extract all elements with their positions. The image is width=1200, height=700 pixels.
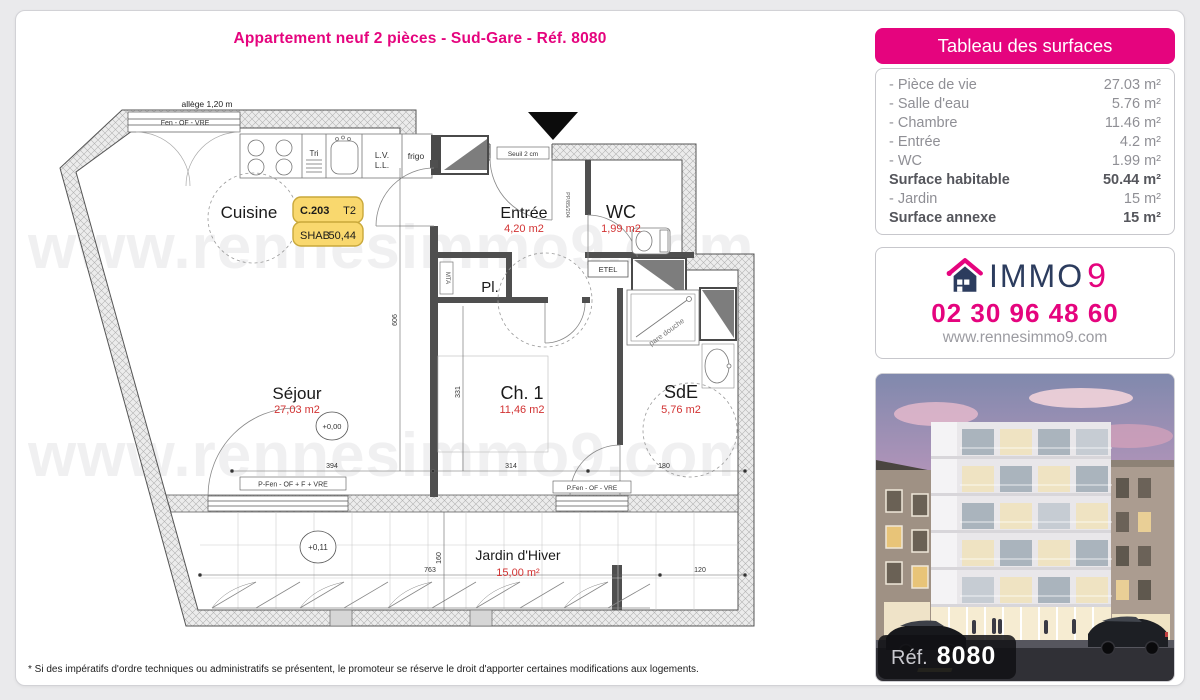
badge-type: T2: [343, 205, 356, 217]
room-sde: SdE: [664, 382, 698, 402]
svg-text:180: 180: [658, 463, 670, 470]
agency-card: IMMO 9 02 30 96 48 60 www.rennesimmo9.co…: [875, 247, 1175, 359]
svg-text:160: 160: [436, 552, 443, 564]
svg-text:120: 120: [694, 567, 706, 574]
chambre-window-label: P.Fen - OF - VRE: [567, 485, 618, 492]
room-placard: Pl.: [481, 279, 499, 296]
table-row: - Jardin15 m²: [889, 190, 1161, 209]
svg-text:331: 331: [455, 386, 462, 398]
svg-text:314: 314: [505, 463, 517, 470]
duct-kitchen: [432, 136, 488, 174]
badge-shab-label: SHAB: [300, 230, 330, 242]
room-cuisine: Cuisine: [221, 203, 278, 222]
sejour-window-label: P-Fen - OF + F + VRE: [258, 482, 328, 489]
area-jardin: 15,00 m²: [496, 567, 540, 579]
exterior-walls: [60, 110, 754, 626]
interior-walls: [430, 160, 694, 610]
sejour-window: [208, 496, 348, 511]
agency-logo: IMMO 9: [876, 254, 1174, 298]
page-title: Appartement neuf 2 pièces - Sud-Gare - R…: [60, 30, 780, 48]
frigo-label: frigo: [408, 151, 425, 161]
room-entree: Entrée: [500, 205, 547, 222]
surfaces-table-header: Tableau des surfaces: [875, 28, 1175, 64]
phone-number[interactable]: 02 30 96 48 60: [876, 298, 1174, 328]
area-chambre: 11,46 m2: [499, 404, 544, 416]
dimension-labels: 394 314 180 763 120 606 331 160: [326, 314, 706, 574]
level-jardin: +0,11: [308, 543, 328, 552]
jardin-louvers: [212, 582, 650, 608]
tri-label: Tri: [309, 149, 318, 158]
sidebar: Tableau des surfaces - Pièce de vie27.03…: [875, 28, 1175, 682]
lv-label: L.V.: [375, 150, 389, 160]
ll-label: L.L.: [375, 160, 389, 170]
entrance-arrow-icon: [528, 112, 578, 140]
brand-nine: 9: [1087, 257, 1106, 296]
window-label: Fen - OF - VRE: [161, 120, 210, 127]
area-entree: 4,20 m2: [504, 223, 544, 235]
svg-text:394: 394: [326, 463, 338, 470]
house-icon: [944, 256, 986, 296]
ref-label: Réf.: [891, 647, 928, 670]
table-row: - Chambre11.46 m²: [889, 114, 1161, 133]
svg-text:606: 606: [392, 314, 399, 326]
building-photo[interactable]: Réf. 8080: [875, 373, 1175, 682]
table-row: - Pièce de vie27.03 m²: [889, 76, 1161, 95]
duct-sde: [700, 288, 736, 340]
table-row-total-annexe: Surface annexe15 m²: [889, 209, 1161, 228]
svg-text:763: 763: [424, 567, 436, 574]
room-jardin: Jardin d'Hiver: [475, 547, 560, 563]
level-main: +0,00: [323, 422, 342, 431]
room-wc: WC: [606, 202, 636, 222]
website-link[interactable]: www.rennesimmo9.com: [876, 328, 1174, 348]
area-sde: 5,76 m2: [661, 404, 701, 416]
reference-badge: Réf. 8080: [878, 635, 1016, 679]
room-chambre: Ch. 1: [500, 383, 543, 403]
table-row: - Salle d'eau5.76 m²: [889, 95, 1161, 114]
badge-shab-value: 50,44: [328, 230, 356, 242]
washbasin-fixture: [702, 344, 734, 388]
table-row: - Entrée4.2 m²: [889, 133, 1161, 152]
ref-value: 8080: [937, 642, 997, 671]
jardin-grid: [200, 512, 738, 610]
table-row: - WC1.99 m²: [889, 152, 1161, 171]
surfaces-table: - Pièce de vie27.03 m² - Salle d'eau5.76…: [875, 68, 1175, 235]
area-sejour: 27,03 m2: [274, 404, 320, 416]
badge-unit: C.203: [300, 205, 329, 217]
disclaimer-text: * Si des impératifs d'ordre techniques o…: [28, 664, 699, 675]
brand-immo: IMMO: [989, 258, 1084, 295]
chambre-window: [556, 496, 628, 511]
svg-text:PP/85/204: PP/85/204: [564, 192, 570, 218]
table-row-total-habitable: Surface habitable50.44 m²: [889, 171, 1161, 190]
etel-label: ETEL: [599, 265, 618, 274]
allege-label: allège 1,20 m: [181, 99, 232, 109]
svg-text:Seuil 2 cm: Seuil 2 cm: [508, 151, 538, 158]
kitchen-counter: [240, 134, 432, 178]
mta-label: MTA: [444, 272, 450, 284]
room-sejour: Séjour: [272, 384, 321, 403]
area-wc: 1,99 m2: [601, 223, 641, 235]
unit-badge: C.203 T2 SHAB 50,44: [293, 197, 363, 246]
